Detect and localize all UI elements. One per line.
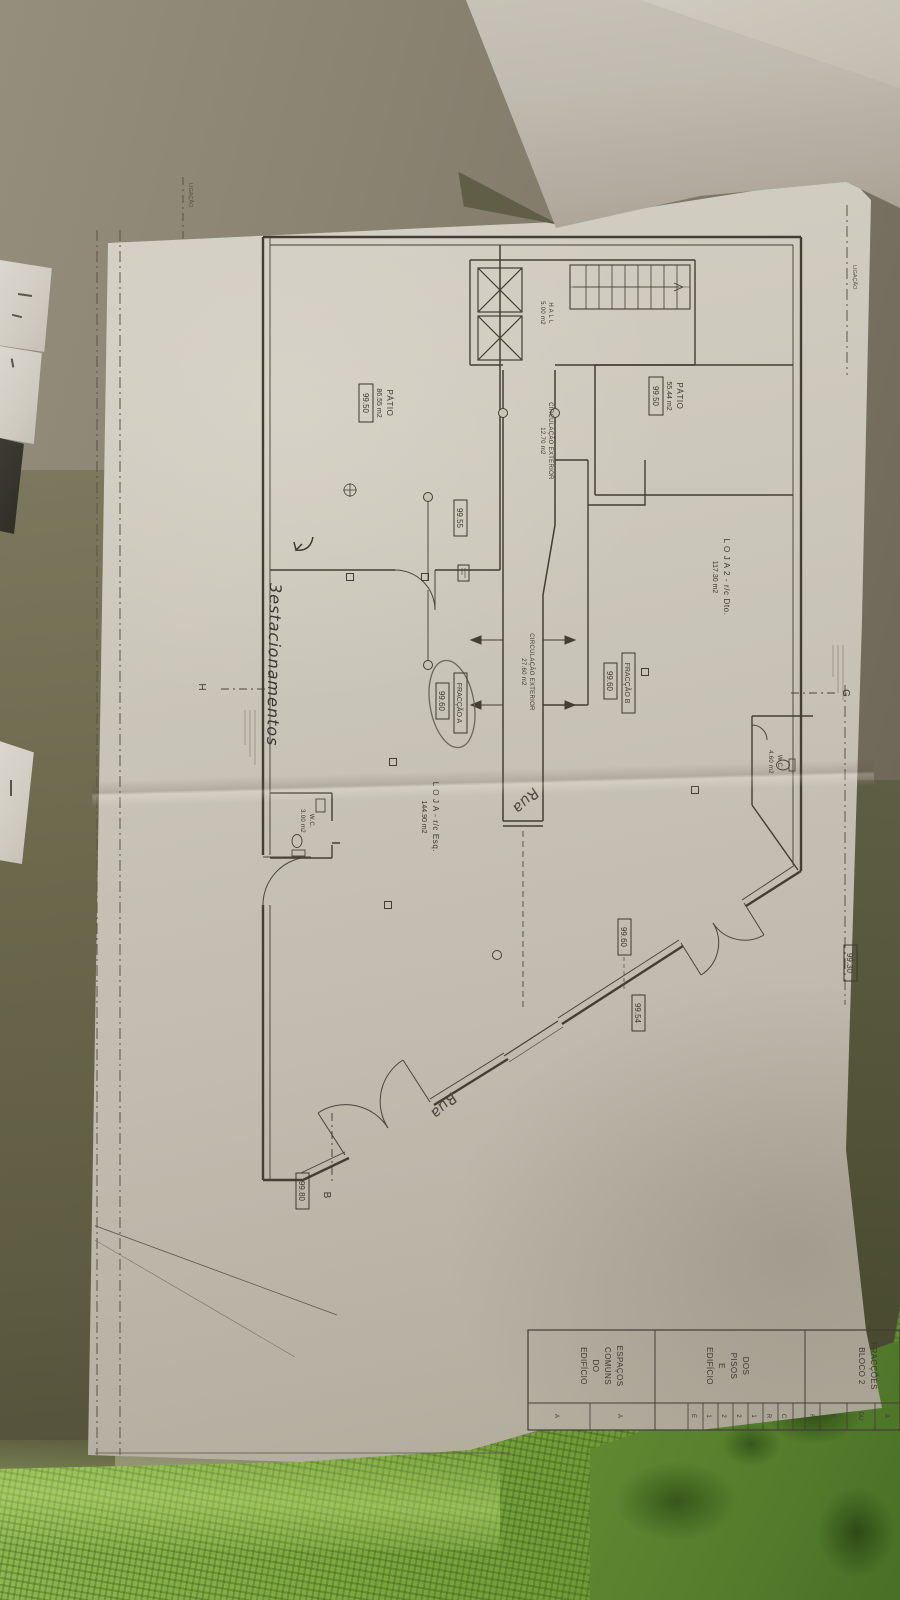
title-cell-text: E xyxy=(717,1363,726,1369)
level-value: 99.50 xyxy=(361,393,370,414)
title-cell-text: ESPAÇOS xyxy=(615,1346,624,1387)
title-cell-text: BLOCO 2 xyxy=(857,1347,866,1385)
room-name: L O J A 2 - r/c Dto. xyxy=(722,538,731,615)
room-name: PÁTIO xyxy=(385,389,394,416)
fraction-name: FRACÇÃO B xyxy=(623,663,632,704)
title-cell-text: DO xyxy=(591,1360,600,1373)
title-cell-text: FRACÇÕES xyxy=(869,1342,878,1390)
title-letter: 1 xyxy=(705,1414,711,1418)
level-value: 99.54 xyxy=(633,1003,642,1024)
paper-scrap-1 xyxy=(0,260,54,352)
room-area: 27.60 m2 xyxy=(520,658,526,686)
level-value: 99.80 xyxy=(297,1181,306,1202)
room-name: CIRCULAÇÃO EXTERIOR xyxy=(528,633,535,711)
fraction-name: FRACÇÃO A xyxy=(455,683,464,724)
stairs xyxy=(570,265,690,309)
room-name: PÁTIO xyxy=(675,382,684,409)
property-lines xyxy=(95,177,847,1455)
title-letter: 2 xyxy=(720,1414,726,1418)
title-block: FRACÇÕES BLOCO 2 DOS PISOS E EDIFÍCIO ES… xyxy=(528,1330,900,1430)
title-letter: A xyxy=(553,1414,559,1418)
title-cell-text: COMUNS xyxy=(603,1347,612,1385)
facade-doors xyxy=(263,570,767,1155)
scrap-mark xyxy=(11,358,15,367)
title-cell-text: EDIFÍCIO xyxy=(579,1347,588,1385)
paper-scrap-2 xyxy=(0,344,44,444)
level-value: 99.50 xyxy=(651,386,660,407)
title-letter: C xyxy=(780,1414,786,1419)
patio-left-walls xyxy=(270,245,500,570)
title-cell-text: DOS xyxy=(741,1357,750,1376)
toilet-icon xyxy=(292,835,302,848)
scrap-mark xyxy=(18,293,32,297)
room-area: 86.55 m2 xyxy=(375,388,382,417)
room-name: H A L L xyxy=(547,302,553,324)
title-letter: F xyxy=(829,1414,835,1418)
handwritten-parking: 3estacionamentos xyxy=(263,583,285,747)
level-value: 99.55 xyxy=(455,508,464,529)
room-area: 12.70 m2 xyxy=(539,427,545,455)
level-value: 99.60 xyxy=(619,927,628,948)
axis-label: LIGAÇÃO xyxy=(187,183,194,208)
title-cell-text: PISOS xyxy=(729,1353,738,1379)
photo-scene: PÁTIO 55.44 m2 99.50 PÁTIO 86.55 m2 99.5… xyxy=(0,0,900,1600)
scrap-mark xyxy=(10,780,12,796)
handwritten-arrow xyxy=(294,537,313,550)
marker-g: G xyxy=(840,689,851,697)
marker-h: H xyxy=(196,683,207,690)
title-letter: 2 xyxy=(735,1414,741,1418)
room-name: W.C. xyxy=(308,814,314,828)
title-letter: F xyxy=(808,1414,814,1418)
floor-plan-drawing: PÁTIO 55.44 m2 99.50 PÁTIO 86.55 m2 99.5… xyxy=(95,165,900,1465)
room-area: 5.00 m2 xyxy=(539,301,545,325)
street-facade-wall xyxy=(263,871,801,1180)
section-markers: G H B xyxy=(196,683,851,1198)
room-area: 117.30 m2 xyxy=(711,561,718,594)
sink-icon xyxy=(316,799,325,812)
marker-b: B xyxy=(321,1192,332,1199)
handwritten-street: Rua xyxy=(427,1089,460,1122)
title-letter: A xyxy=(883,1414,889,1418)
stair-direction-arrow xyxy=(573,283,683,291)
room-area: 3.00 m2 xyxy=(299,809,305,833)
building-walls xyxy=(263,237,813,1180)
axis-label: LIGAÇÃO xyxy=(851,265,858,290)
room-area: 55.44 m2 xyxy=(665,381,672,410)
level-value: 99.60 xyxy=(437,691,446,712)
title-letter: R xyxy=(765,1414,771,1419)
title-letter: DU xyxy=(857,1412,863,1421)
title-cell-text: EDIFÍCIO xyxy=(705,1347,714,1385)
drain-symbol xyxy=(343,483,357,497)
title-letter: A xyxy=(616,1414,622,1418)
level-value: 99.30 xyxy=(845,953,854,974)
title-letter: 1 xyxy=(750,1414,756,1418)
scrap-mark xyxy=(12,314,22,318)
room-area: 144.90 m2 xyxy=(420,800,427,833)
title-letter: E xyxy=(690,1414,696,1418)
patio-top-walls xyxy=(595,365,793,495)
room-name: CIRCULAÇÃO EXTERIOR xyxy=(547,402,554,480)
wc-right-walls xyxy=(752,716,813,870)
small-box-symbol xyxy=(458,565,469,581)
level-value: 99.60 xyxy=(605,671,614,692)
